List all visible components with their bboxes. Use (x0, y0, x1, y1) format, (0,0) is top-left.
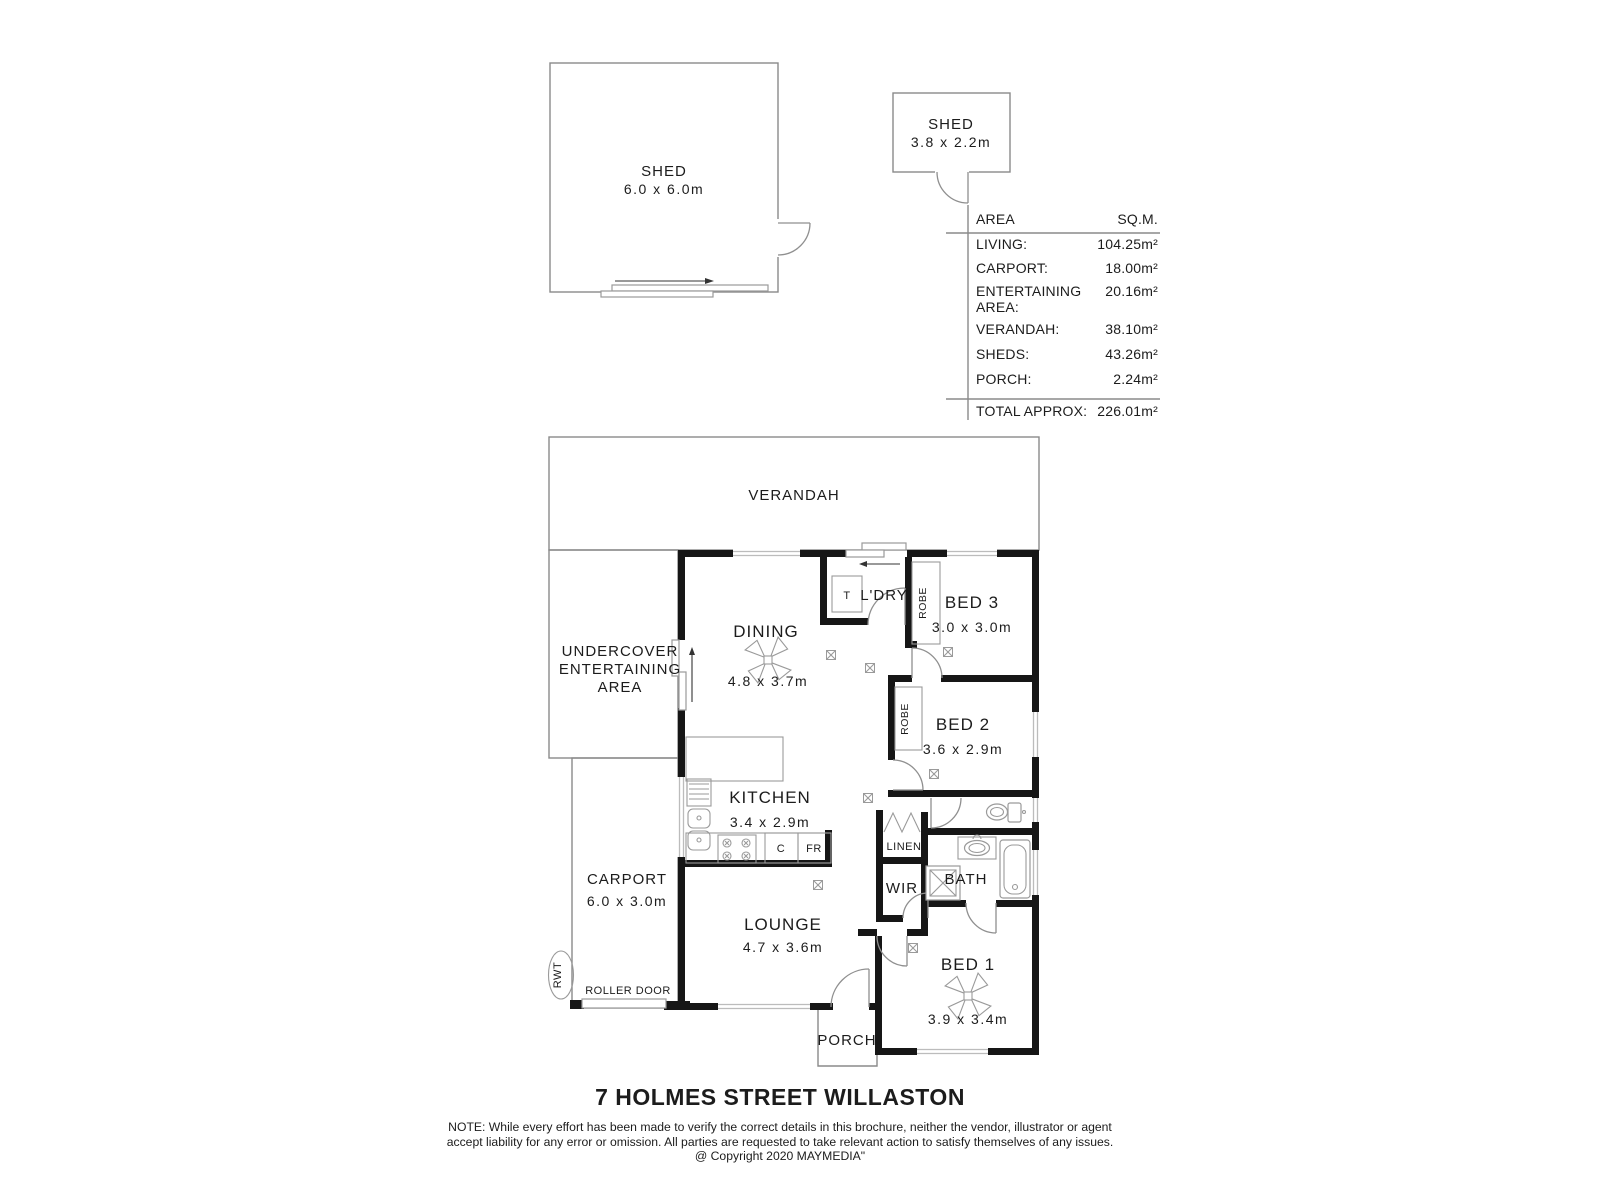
table-row: PORCH: 2.24m² (976, 371, 1158, 387)
lounge-dims: 4.7 x 3.6m (743, 939, 823, 955)
small-shed: SHED 3.8 x 2.2m (893, 93, 1010, 203)
room-labels: VERANDAH UNDERCOVER ENTERTAINING AREA CA… (552, 487, 1012, 1049)
svg-text:PORCH:: PORCH: (976, 371, 1032, 387)
wir-label: WIR (886, 880, 918, 897)
basin-icon (958, 835, 996, 859)
bed3-dims: 3.0 x 3.0m (932, 619, 1012, 635)
bed2-door (893, 760, 923, 790)
disclaimer-line2: accept liability for any error or omissi… (447, 1135, 1114, 1149)
carport-label: CARPORT (587, 871, 667, 888)
large-shed: SHED 6.0 x 6.0m (550, 63, 810, 297)
disclaimer-line1: NOTE: While every effort has been made t… (448, 1120, 1112, 1134)
window (917, 1047, 988, 1056)
verandah-label: VERANDAH (748, 487, 839, 504)
kitchen-bench (686, 737, 783, 781)
sliding-door (601, 278, 768, 297)
svg-text:VERANDAH:: VERANDAH: (976, 321, 1059, 337)
svg-text:SHEDS:: SHEDS: (976, 346, 1029, 362)
footer: 7 HOLMES STREET WILLASTON NOTE: While ev… (447, 1084, 1114, 1163)
dining-dims: 4.8 x 3.7m (728, 673, 808, 689)
table-row: ENTERTAINING AREA: 20.16m² (976, 283, 1158, 315)
entertaining-label-line1: UNDERCOVER (562, 643, 679, 660)
large-shed-dims: 6.0 x 6.0m (624, 181, 704, 197)
carport-dims: 6.0 x 3.0m (587, 893, 667, 909)
ceiling-light-icon (827, 651, 836, 660)
window (677, 777, 686, 857)
window (1031, 712, 1040, 757)
large-shed-label: SHED (641, 163, 687, 180)
entertaining-label-line3: AREA (598, 679, 643, 696)
window (733, 549, 800, 558)
bath-label: BATH (945, 871, 988, 888)
cupboard-label: C (777, 843, 785, 855)
svg-text:AREA:: AREA: (976, 299, 1019, 315)
sliding-door-top (846, 543, 906, 567)
svg-text:43.26m²: 43.26m² (1105, 346, 1158, 362)
small-shed-label: SHED (928, 116, 974, 133)
floorplan-drawing: SHED 6.0 x 6.0m SHED 3.8 x 2.2m AREA SQ.… (0, 0, 1600, 1200)
ceiling-light-icon (814, 881, 823, 890)
table-row: SHEDS: 43.26m² (976, 346, 1158, 362)
bed1-label: BED 1 (941, 955, 995, 974)
svg-text:18.00m²: 18.00m² (1105, 260, 1158, 276)
ceiling-light-icon (866, 664, 875, 673)
svg-text:CARPORT:: CARPORT: (976, 260, 1048, 276)
table-row: CARPORT: 18.00m² (976, 260, 1158, 276)
ceiling-light-icon (909, 944, 918, 953)
svg-text:38.10m²: 38.10m² (1105, 321, 1158, 337)
small-shed-dims: 3.8 x 2.2m (911, 134, 991, 150)
kitchen-dims: 3.4 x 2.9m (730, 814, 810, 830)
laundry-label: L'DRY (860, 587, 908, 604)
svg-text:TOTAL APPROX:: TOTAL APPROX: (976, 403, 1087, 419)
svg-text:226.01m²: 226.01m² (1097, 403, 1158, 419)
page-title: 7 HOLMES STREET WILLASTON (595, 1084, 965, 1110)
front-door (831, 969, 869, 1007)
linen-label: LINEN (887, 841, 922, 853)
table-header-sqm: SQ.M. (1117, 211, 1158, 227)
bathtub-icon (1000, 840, 1030, 898)
fridge-label: FR (806, 843, 822, 855)
bath-door (966, 903, 996, 933)
robe-bed3-label: ROBE (917, 587, 929, 619)
area-table: AREA SQ.M. LIVING: 104.25m² CARPORT: 18.… (946, 205, 1160, 420)
stove-icon (718, 835, 756, 863)
table-total-row: TOTAL APPROX: 226.01m² (976, 403, 1158, 419)
table-row: VERANDAH: 38.10m² (976, 321, 1158, 337)
door-arc (937, 172, 968, 203)
bed3-label: BED 3 (945, 593, 999, 612)
robe-bed2-label: ROBE (899, 703, 911, 735)
bed2-dims: 3.6 x 2.9m (923, 741, 1003, 757)
rwt-label: RWT (552, 962, 564, 988)
svg-text:LIVING:: LIVING: (976, 236, 1027, 252)
svg-text:104.25m²: 104.25m² (1097, 236, 1158, 252)
copyright: @ Copyright 2020 MAYMEDIA" (695, 1149, 865, 1163)
bed1-dims: 3.9 x 3.4m (928, 1011, 1008, 1027)
dining-label: DINING (733, 622, 799, 641)
roller-door-label: ROLLER DOOR (585, 985, 671, 997)
linen-bifold-door (884, 813, 920, 832)
trough-label: T (843, 590, 850, 602)
svg-text:ENTERTAINING: ENTERTAINING (976, 283, 1081, 299)
bed3-door (912, 648, 942, 678)
window (1031, 850, 1040, 895)
ceiling-light-icon (864, 794, 873, 803)
floorplan-page: SHED 6.0 x 6.0m SHED 3.8 x 2.2m AREA SQ.… (0, 0, 1600, 1200)
roller-door-panel (582, 999, 666, 1008)
ceiling-light-icon (944, 648, 953, 657)
svg-text:20.16m²: 20.16m² (1105, 283, 1158, 299)
porch-label: PORCH (817, 1032, 876, 1049)
window (718, 1002, 810, 1011)
table-row: LIVING: 104.25m² (976, 236, 1158, 252)
toilet-icon (987, 803, 1026, 822)
table-header-area: AREA (976, 211, 1015, 227)
ceiling-light-icon (930, 770, 939, 779)
kitchen-label: KITCHEN (729, 788, 811, 807)
window (1031, 798, 1040, 822)
bed2-label: BED 2 (936, 715, 990, 734)
lounge-label: LOUNGE (744, 915, 822, 934)
entertaining-label-line2: ENTERTAINING (559, 661, 681, 678)
wc-door (931, 798, 961, 828)
kitchen-sink (687, 779, 711, 850)
window (947, 549, 997, 558)
svg-text:2.24m²: 2.24m² (1113, 371, 1158, 387)
